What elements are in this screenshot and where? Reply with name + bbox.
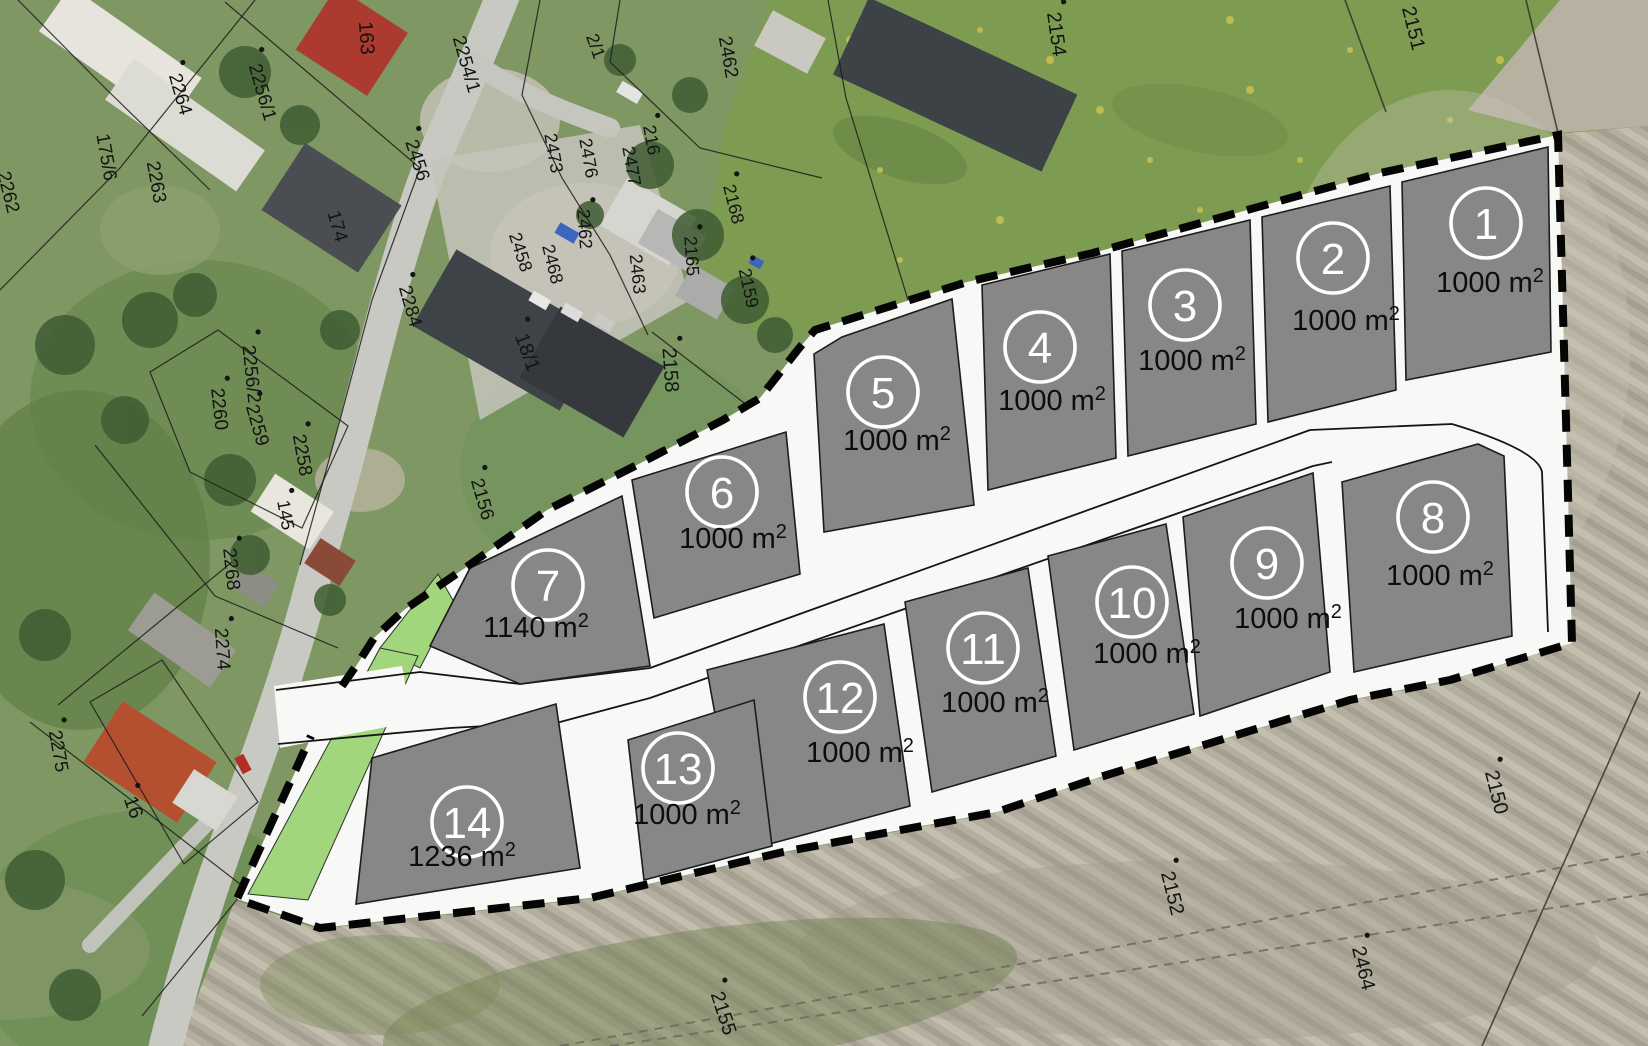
plot-area-label: 1236 m2 xyxy=(408,839,516,873)
plot-number-label: 3 xyxy=(1173,282,1197,331)
parcel-label-text: 163 xyxy=(354,21,378,56)
plot-area-label: 1000 m2 xyxy=(941,685,1049,719)
plot-area-label: 1000 m2 xyxy=(806,735,914,769)
plot-number-label: 5 xyxy=(871,369,895,418)
plot-1[interactable]: 11000 m2 xyxy=(1402,147,1551,380)
parcel-label-text: 2165 xyxy=(680,235,703,276)
parcel-label-text: 2260 xyxy=(206,387,231,431)
parcel-label-text: 2158 xyxy=(657,347,682,393)
plot-shape-11[interactable] xyxy=(905,568,1056,792)
plot-number-label: 1 xyxy=(1474,200,1498,249)
plot-area-label: 1000 m2 xyxy=(998,383,1106,417)
parcel-label-text: 2463 xyxy=(626,253,650,295)
parcel-label-163: 163 xyxy=(354,21,378,56)
plot-3[interactable]: 31000 m2 xyxy=(1122,220,1256,456)
plot-number-label: 11 xyxy=(960,625,1006,674)
parcel-label-text: 2462 xyxy=(573,208,596,249)
plot-area-label: 1140 m2 xyxy=(483,610,589,644)
plot-area-label: 1000 m2 xyxy=(633,797,741,831)
plot-2[interactable]: 21000 m2 xyxy=(1262,186,1400,422)
plot-area-label: 1000 m2 xyxy=(1093,636,1201,670)
plot-number-label: 6 xyxy=(710,469,734,518)
plot-number-label: 4 xyxy=(1028,324,1052,373)
plot-area-label: 1000 m2 xyxy=(1234,601,1342,635)
plot-area-label: 1000 m2 xyxy=(843,423,951,457)
plot-11[interactable]: 111000 m2 xyxy=(905,568,1056,792)
plot-number-label: 12 xyxy=(816,674,865,723)
plot-number-label: 9 xyxy=(1255,540,1279,589)
parcel-label-text: 2274 xyxy=(210,627,234,671)
plot-area-label: 1000 m2 xyxy=(1138,343,1246,377)
parcel-label-text: 2268 xyxy=(218,547,243,591)
plot-area-label: 1000 m2 xyxy=(1292,303,1400,337)
plot-8[interactable]: 81000 m2 xyxy=(1342,444,1512,672)
aerial-development-plan-map: 11000 m221000 m231000 m241000 m251000 m2… xyxy=(0,0,1648,1046)
plot-number-label: 10 xyxy=(1108,579,1157,628)
plot-4[interactable]: 41000 m2 xyxy=(982,254,1116,490)
plot-number-label: 8 xyxy=(1421,494,1445,543)
plot-number-label: 13 xyxy=(654,745,703,794)
parcel-label-2463: 2463 xyxy=(626,253,650,295)
plot-shape-1[interactable] xyxy=(1402,147,1551,380)
plot-area-label: 1000 m2 xyxy=(1386,558,1494,592)
plot-area-label: 1000 m2 xyxy=(679,521,787,555)
plot-shape-2[interactable] xyxy=(1262,186,1396,422)
plot-number-label: 7 xyxy=(536,562,560,611)
plot-area-label: 1000 m2 xyxy=(1436,265,1544,299)
plot-number-label: 2 xyxy=(1321,235,1345,284)
